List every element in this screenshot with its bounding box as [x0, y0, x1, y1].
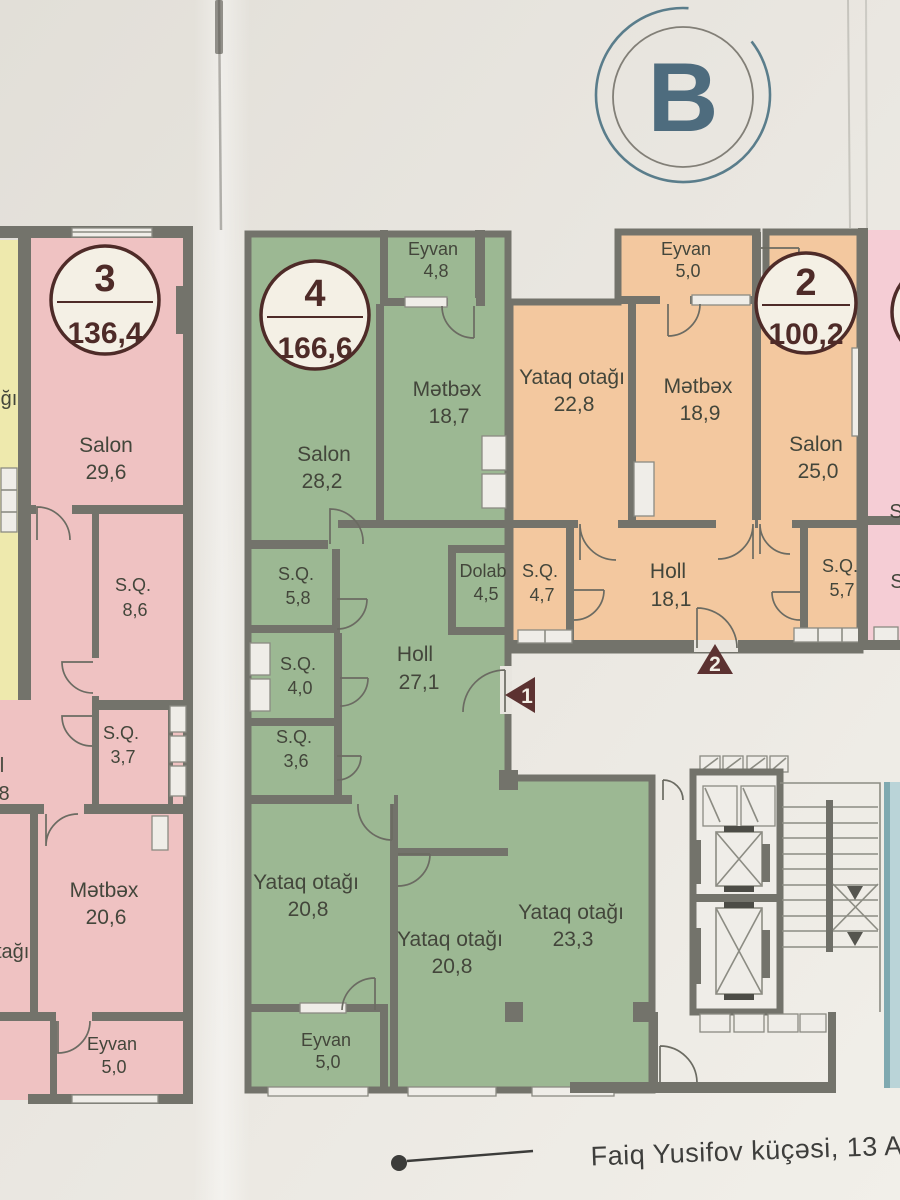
room-area: 28,2: [302, 470, 343, 493]
floor-plan-svg: B ğı: [0, 0, 900, 1200]
room-area: 18,7: [429, 405, 470, 428]
marker-number: 2: [709, 653, 721, 676]
room-area: 3,6: [283, 751, 308, 771]
apartment-number: 4: [304, 273, 325, 315]
room-name: S.Q.: [822, 556, 858, 576]
room-name: S.Q.: [115, 575, 151, 595]
room-area: 3,7: [110, 747, 135, 767]
apartment-area: 100,2: [768, 318, 843, 351]
apartment-area: 166,6: [277, 332, 352, 365]
room-area: 5,0: [315, 1052, 340, 1072]
room-name: Salon: [79, 434, 133, 457]
street-leader-dot: [391, 1155, 407, 1171]
cutoff-room-label: S: [889, 501, 900, 523]
apartment-number: 2: [795, 262, 816, 304]
room-area: 20,6: [86, 906, 127, 929]
block-letter: B: [648, 42, 719, 152]
room-area: 29,6: [86, 461, 127, 484]
room-name: Dolab: [459, 561, 506, 581]
room-name: S.Q.: [278, 564, 314, 584]
apartment-right-sliver: S S: [858, 228, 900, 650]
apartment-4-badge: 4 166,6: [261, 261, 369, 369]
room-name: Yataq otağı: [518, 901, 624, 924]
apartment-number: 3: [94, 258, 115, 300]
fold-shadow: [215, 0, 223, 54]
room-name: Mətbəx: [70, 879, 139, 902]
room-name: Eyvan: [87, 1034, 137, 1054]
room-name: Mətbəx: [664, 375, 733, 398]
room-area: 4,0: [287, 678, 312, 698]
cutoff-room-label: ğı: [1, 388, 18, 410]
cutoff-room-label: S: [890, 571, 900, 593]
room-name: Eyvan: [301, 1030, 351, 1050]
room-name: Salon: [789, 433, 843, 456]
room-name: Eyvan: [661, 239, 711, 259]
apartment-2-badge: 2 100,2: [756, 253, 856, 353]
room-area: 4,5: [473, 584, 498, 604]
cutoff-room-label: 8: [0, 783, 10, 805]
room-name: Yataq otağı: [397, 928, 503, 951]
room-name: Mətbəx: [413, 378, 482, 401]
room-area: 5,8: [285, 588, 310, 608]
apartment-3-badge: 3 136,4: [51, 246, 159, 354]
room-area: 8,6: [122, 600, 147, 620]
cutoff-room-label: l: [0, 755, 4, 777]
apartment-area: 136,4: [67, 317, 142, 350]
room-area: 5,7: [829, 580, 854, 600]
fold-crease: [194, 0, 250, 1200]
room-name: S.Q.: [103, 723, 139, 743]
room-area: 18,9: [680, 402, 721, 425]
room-name: Holl: [650, 560, 686, 583]
room-name: S.Q.: [522, 561, 558, 581]
room-name: Salon: [297, 443, 351, 466]
room-area: 5,0: [101, 1057, 126, 1077]
cutoff-room-label: tağı: [0, 941, 29, 963]
room-name: Yataq otağı: [519, 366, 625, 389]
room-area: 4,7: [529, 585, 554, 605]
room-area: 25,0: [798, 460, 839, 483]
room-area: 27,1: [399, 671, 440, 694]
floor-plan-photo: B ğı: [0, 0, 900, 1200]
room-name: S.Q.: [276, 727, 312, 747]
apartment-yellow-sliver: ğı: [0, 238, 31, 700]
room-area: 22,8: [554, 393, 595, 416]
room-name: S.Q.: [280, 654, 316, 674]
room-name: Yataq otağı: [253, 871, 359, 894]
room-area: 5,0: [675, 261, 700, 281]
room-name: Eyvan: [408, 239, 458, 259]
fold-line-right-2: [866, 0, 867, 228]
room-area: 23,3: [553, 928, 594, 951]
marker-number: 1: [521, 685, 533, 708]
room-area: 4,8: [423, 261, 448, 281]
room-area: 20,8: [432, 955, 473, 978]
room-area: 18,1: [651, 588, 692, 611]
room-area: 20,8: [288, 898, 329, 921]
room-name: Holl: [397, 643, 433, 666]
